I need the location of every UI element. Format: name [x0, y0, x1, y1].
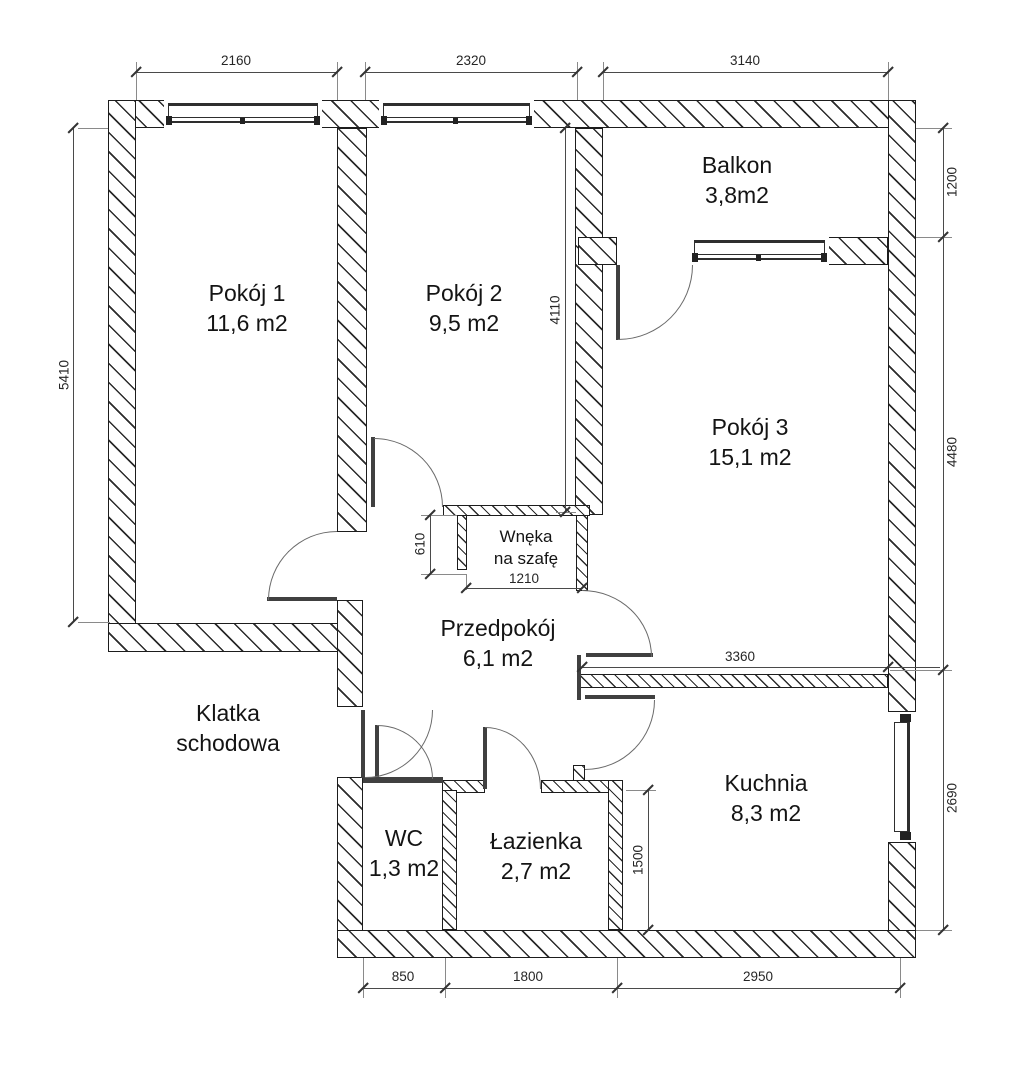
- ext-line: [445, 958, 446, 998]
- dim-label-1200: 1200: [945, 167, 960, 197]
- ext-line: [916, 237, 952, 238]
- wall-lazienka-top-right: [541, 780, 612, 793]
- window-balkon: [690, 237, 829, 265]
- ext-line: [626, 790, 656, 791]
- ext-line: [888, 62, 889, 100]
- ext-line: [916, 128, 952, 129]
- ext-line: [363, 958, 364, 998]
- ext-line: [556, 512, 576, 513]
- ext-line: [365, 62, 366, 100]
- room-label-pokoj1: Pokój 1 11,6 m2: [147, 278, 347, 338]
- room-label-przedpokoj: Przedpokój 6,1 m2: [388, 613, 608, 673]
- room-label-wneka: Wnęka na szafę: [446, 526, 606, 570]
- dim-label-2950: 2950: [743, 969, 773, 984]
- dim-label-1210: 1210: [509, 571, 539, 586]
- dim-line-1500: [648, 790, 649, 930]
- dim-label-5410: 5410: [57, 360, 72, 390]
- room-label-klatka-schodowa: Klatka schodowa: [118, 698, 338, 758]
- dim-label-2690: 2690: [945, 783, 960, 813]
- door-arc-balkon: [618, 265, 693, 340]
- dim-line-top-1: [136, 72, 337, 73]
- ext-line: [900, 958, 901, 998]
- dim-label-3140: 3140: [730, 53, 760, 68]
- wall-entry-left: [337, 600, 363, 707]
- room-label-lazienka: Łazienka 2,7 m2: [436, 826, 636, 886]
- dim-label-850: 850: [392, 969, 415, 984]
- wall-kuchnia-top: [580, 674, 888, 688]
- floor-plan: 2160 2320 3140 1200 4480 2690 5410 4110 …: [0, 0, 1028, 1080]
- window-kuchnia: [888, 712, 916, 842]
- room-label-pokoj2: Pokój 2 9,5 m2: [364, 278, 564, 338]
- dim-line-top-3: [603, 72, 888, 73]
- window-pokoj2: [379, 100, 534, 128]
- door-arc-pokoj2: [374, 438, 443, 507]
- wall-kuchnia-jamb: [573, 765, 585, 781]
- window-pokoj1: [164, 100, 322, 128]
- ext-line: [337, 62, 338, 100]
- dim-line-top-2: [365, 72, 577, 73]
- dim-line-left: [73, 128, 74, 622]
- ext-line: [78, 128, 108, 129]
- ext-line: [577, 62, 578, 100]
- room-label-kuchnia: Kuchnia 8,3 m2: [666, 768, 866, 828]
- dim-line-1210: [466, 588, 582, 589]
- door-arc-lazienka: [485, 727, 541, 789]
- door-arc-pokoj1: [268, 531, 337, 600]
- ext-line: [603, 62, 604, 100]
- dim-label-3360: 3360: [725, 649, 755, 664]
- wall-balkon-stub: [578, 237, 617, 265]
- wall-left: [108, 100, 136, 652]
- ext-line: [78, 622, 110, 623]
- wall-bottom: [337, 930, 916, 958]
- dim-label-2160: 2160: [221, 53, 251, 68]
- dim-label-610: 610: [413, 533, 428, 556]
- wall-balkon-right-segment: [827, 237, 888, 265]
- dim-label-4480: 4480: [945, 437, 960, 467]
- wall-pokoj1-bottom: [108, 623, 363, 652]
- dim-line-4110: [565, 128, 566, 512]
- wall-pokoj2-pokoj3: [575, 128, 603, 515]
- room-label-balkon: Balkon 3,8m2: [637, 150, 837, 210]
- dim-label-2320: 2320: [456, 53, 486, 68]
- door-arc-kuchnia: [585, 700, 655, 770]
- ext-line: [916, 930, 952, 931]
- ext-line: [136, 62, 137, 100]
- door-leaf-kuchnia: [585, 695, 655, 699]
- room-label-pokoj3: Pokój 3 15,1 m2: [650, 412, 850, 472]
- ext-line: [617, 958, 618, 998]
- dim-label-1800: 1800: [513, 969, 543, 984]
- wall-right-upper: [888, 100, 916, 712]
- dim-line-610: [430, 515, 431, 574]
